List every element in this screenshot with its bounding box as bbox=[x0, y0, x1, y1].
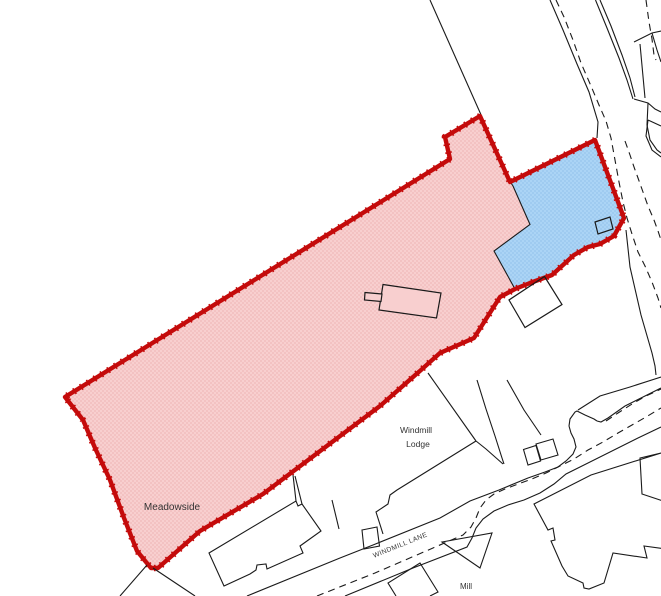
svg-text:Meadowside: Meadowside bbox=[144, 502, 201, 513]
svg-text:Windmill: Windmill bbox=[400, 425, 432, 435]
svg-text:Lodge: Lodge bbox=[406, 439, 430, 449]
svg-text:Mill: Mill bbox=[460, 582, 472, 591]
